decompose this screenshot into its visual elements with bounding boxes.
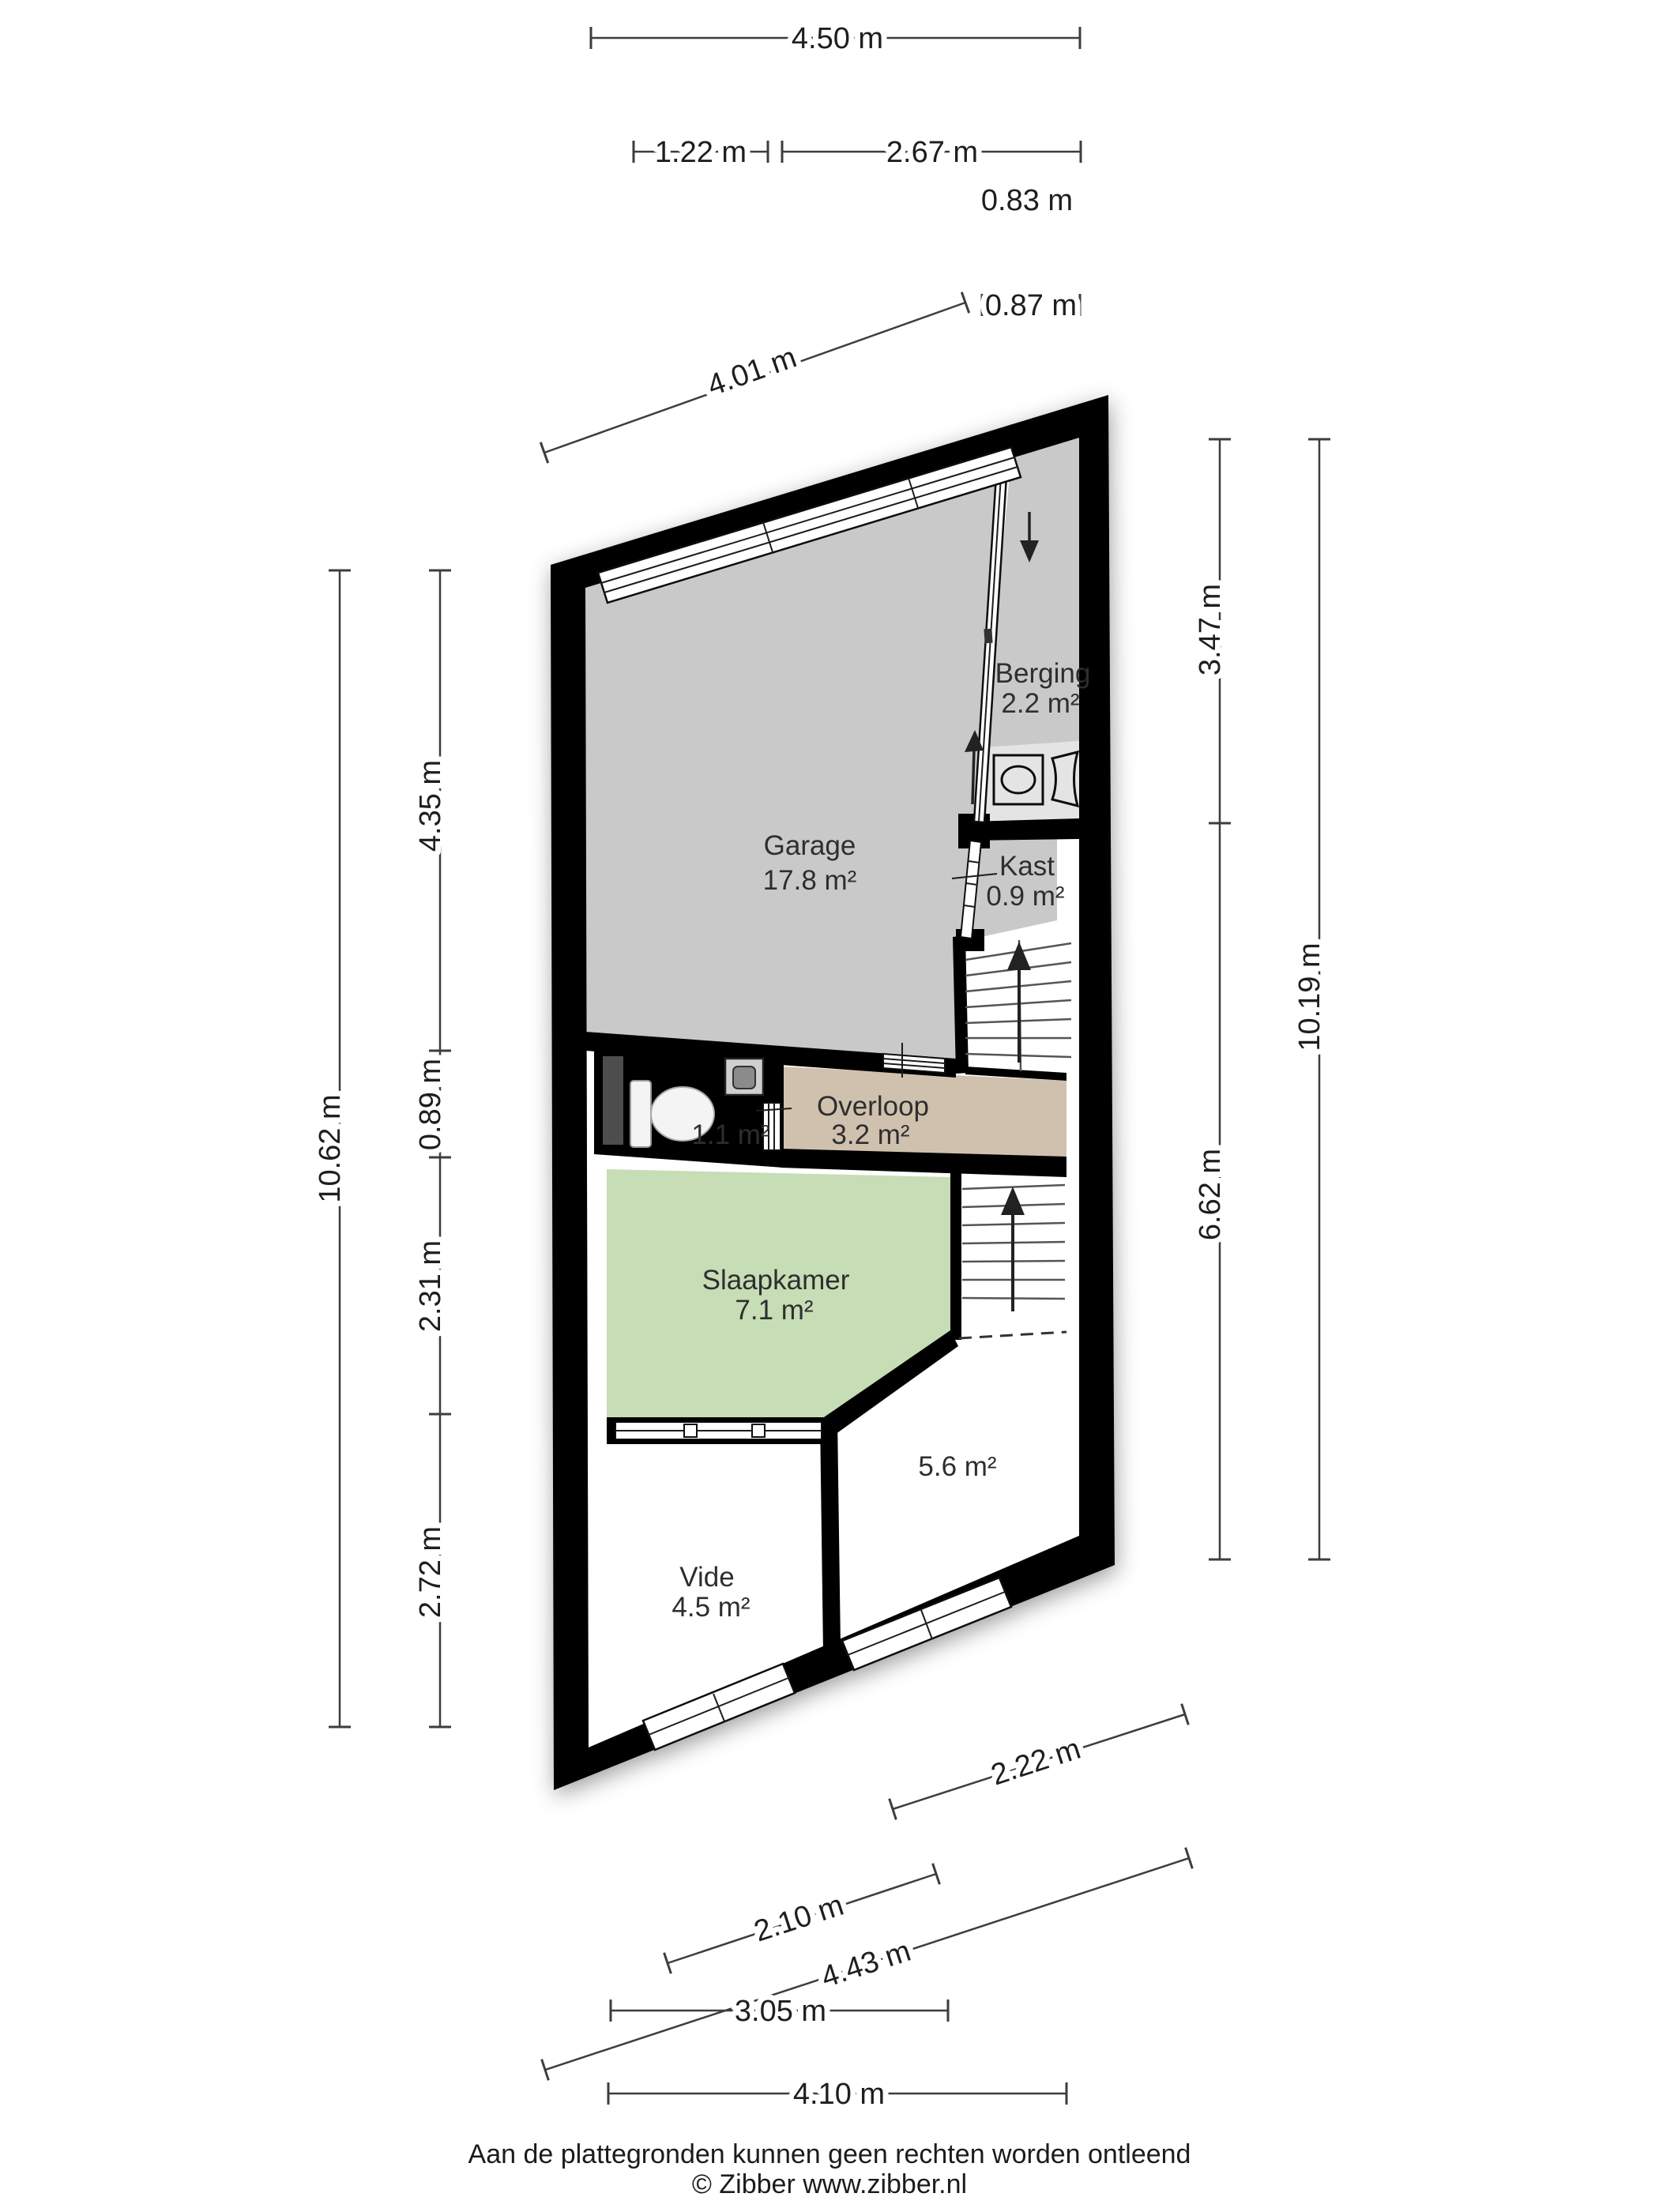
dim-label-3-05: 3.05 m (735, 1995, 826, 2028)
garage-area: 17.8 m² (763, 865, 857, 896)
dim-label-0-83: 0.83 m (981, 184, 1073, 217)
slaapkamer-area: 7.1 m² (735, 1295, 813, 1326)
dim-label-4-10: 4.10 m (793, 2078, 885, 2111)
vide-room-divider-wall (820, 1419, 841, 1653)
dim-label-2-10: 2.10 m (750, 1889, 848, 1949)
dim-label-0-89: 0.89 m (414, 1059, 447, 1150)
dim-label-2-31: 2.31 m (414, 1240, 447, 1332)
vide-label: Vide (679, 1562, 734, 1593)
sink-icon (725, 1059, 763, 1095)
toilet-duct (603, 1056, 623, 1145)
vide-area: 4.5 m² (671, 1592, 750, 1623)
kast-label: Kast (999, 851, 1055, 882)
garage-label: Garage (764, 830, 856, 861)
overloop-label: Overloop (817, 1091, 929, 1122)
berging-area: 2.2 m² (1001, 688, 1079, 719)
floorplan: Garage 17.8 m² Berging 2.2 m² Kast 0.9 m… (551, 395, 1115, 1790)
footer: Aan de plattegronden kunnen geen rechten… (468, 2139, 1191, 2199)
dim-label-6-62: 6.62 m (1194, 1149, 1227, 1240)
dim-label-4-43: 4.43 m (818, 1935, 915, 1995)
room-5-6-area: 5.6 m² (918, 1451, 996, 1482)
dim-label-10-62: 10.62 m (314, 1094, 347, 1202)
dim-label-3-47: 3.47 m (1194, 584, 1227, 675)
dim-label-10-19: 10.19 m (1293, 942, 1326, 1051)
dim-label-4-01: 4.01 m (703, 341, 801, 403)
footer-copyright: © Zibber www.zibber.nl (692, 2169, 967, 2199)
dim-label-4-50: 4.50 m (792, 22, 883, 55)
laundry-basket-icon (1052, 752, 1078, 806)
slaapkamer-window (615, 1422, 822, 1439)
slaapkamer-label: Slaapkamer (702, 1265, 850, 1296)
overloop-area: 3.2 m² (831, 1119, 909, 1150)
washing-machine-icon (994, 755, 1043, 804)
kast-area: 0.9 m² (986, 881, 1064, 912)
floorplan-page: Garage 17.8 m² Berging 2.2 m² Kast 0.9 m… (0, 0, 1659, 2212)
dim-label-1-22: 1.22 m (655, 136, 747, 169)
dim-label-4-35: 4.35 m (414, 760, 447, 852)
stair-left-wall-lower (950, 1169, 961, 1340)
dim-label-0-87: 0.87 m (985, 289, 1077, 322)
floorplan-canvas: Garage 17.8 m² Berging 2.2 m² Kast 0.9 m… (0, 0, 1659, 2212)
footer-disclaimer: Aan de plattegronden kunnen geen rechten… (468, 2139, 1191, 2169)
toilet-area: 1.1 m² (691, 1119, 769, 1150)
dim-label-2-67: 2.67 m (886, 136, 978, 169)
dim-label-2-72: 2.72 m (414, 1526, 447, 1618)
dim-label-2-22: 2.22 m (987, 1732, 1085, 1793)
berging-label: Berging (995, 658, 1091, 689)
